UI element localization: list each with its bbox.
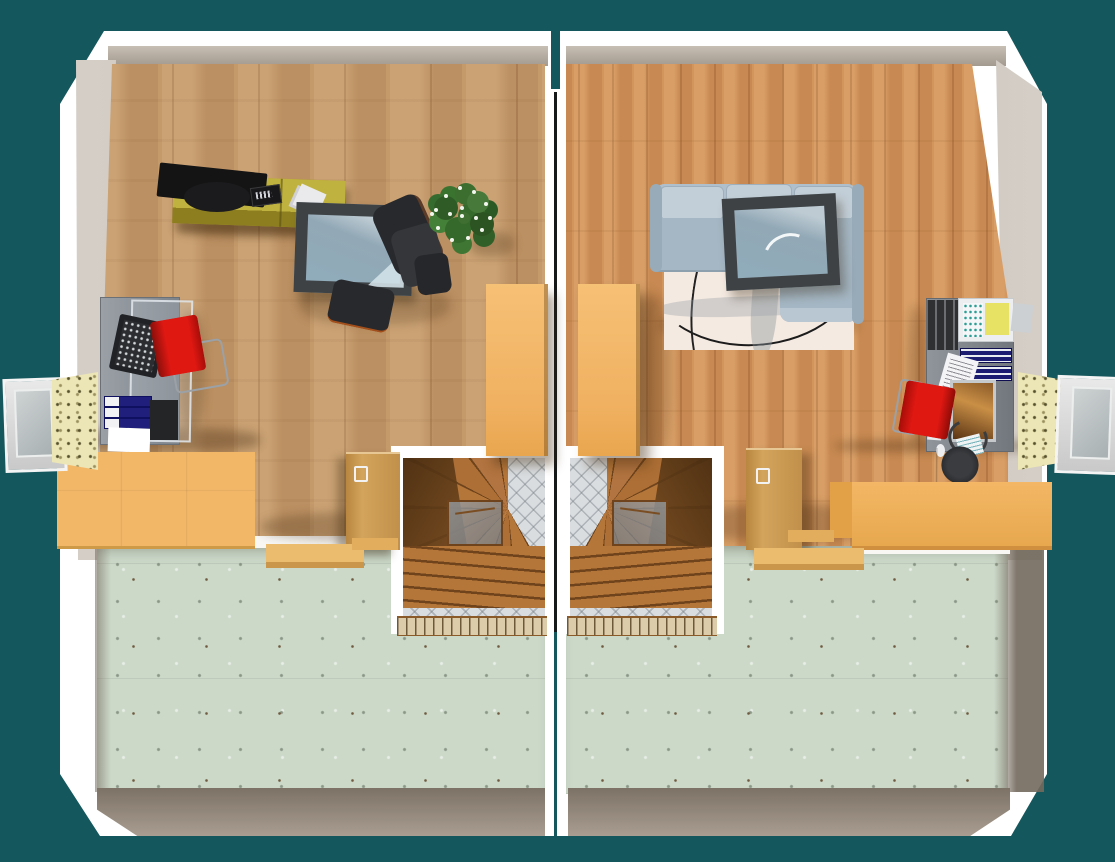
desk-black-cabinet: [926, 300, 958, 350]
yellow-notepad: [985, 303, 1009, 335]
sofa-cushion: [660, 186, 724, 220]
window-glass: [1070, 386, 1112, 459]
left-red-desk-chair: [150, 314, 207, 377]
left-stair-landing-grate: [397, 616, 547, 636]
stair-straight-flight: [403, 546, 545, 608]
door-handle: [354, 466, 368, 482]
tv-base: [184, 182, 250, 212]
desk-black-box: [150, 400, 178, 440]
right-red-desk-chair: [898, 380, 956, 440]
glass-reflection: [756, 225, 822, 288]
white-paper: [108, 427, 151, 452]
plant-shadow: [470, 232, 514, 256]
stair-railing-newel: [447, 500, 503, 546]
right-attic-floor-edge-shadow: [994, 546, 1044, 792]
stair-railing-newel: [612, 500, 668, 546]
right-step-bench-return: [788, 530, 834, 542]
left-step-bench: [266, 544, 364, 568]
left-dormer-window: [0, 370, 104, 474]
desk-shelf-unit: [958, 298, 1014, 342]
document-binder: [104, 396, 152, 407]
black-lounge-chair-arm: [413, 252, 452, 296]
party-wall-line: [554, 92, 557, 632]
sofa-armrest: [650, 184, 662, 272]
party-wall-line-lower: [554, 632, 557, 836]
party-wall-gap-top: [551, 31, 560, 89]
shelf-card: [963, 303, 983, 337]
right-step-bench: [754, 548, 864, 570]
stair-straight-flight: [570, 546, 712, 608]
left-top-wall-face: [108, 46, 548, 66]
glass-coffee-table-right: [722, 193, 841, 291]
right-stair-landing-grate: [567, 616, 717, 636]
left-bottom-wall-face: [97, 788, 545, 836]
left-attic-floor-edge-shadow: [95, 546, 111, 792]
window-glass: [14, 388, 54, 457]
floor-plan-render: [0, 0, 1115, 862]
shelf-tray: [1011, 303, 1034, 333]
window-sill-speckled: [52, 372, 98, 470]
right-bottom-wall-face: [568, 788, 1010, 836]
left-step-bench-return: [352, 538, 398, 550]
left-winder-staircase: [403, 458, 545, 618]
right-tall-wardrobe: [578, 284, 640, 456]
right-winder-staircase: [570, 458, 712, 618]
document-binder: [104, 407, 152, 418]
left-wood-partition-door: [346, 452, 400, 550]
right-bed-frame: [852, 482, 1052, 550]
right-dormer-window: [1012, 370, 1115, 474]
window-frame: [1054, 375, 1115, 475]
potted-plant-flowers: [460, 214, 464, 218]
right-top-wall-face: [566, 46, 1006, 66]
left-tall-wardrobe: [486, 284, 548, 456]
sofa-armrest: [852, 184, 864, 324]
door-handle: [756, 468, 770, 484]
